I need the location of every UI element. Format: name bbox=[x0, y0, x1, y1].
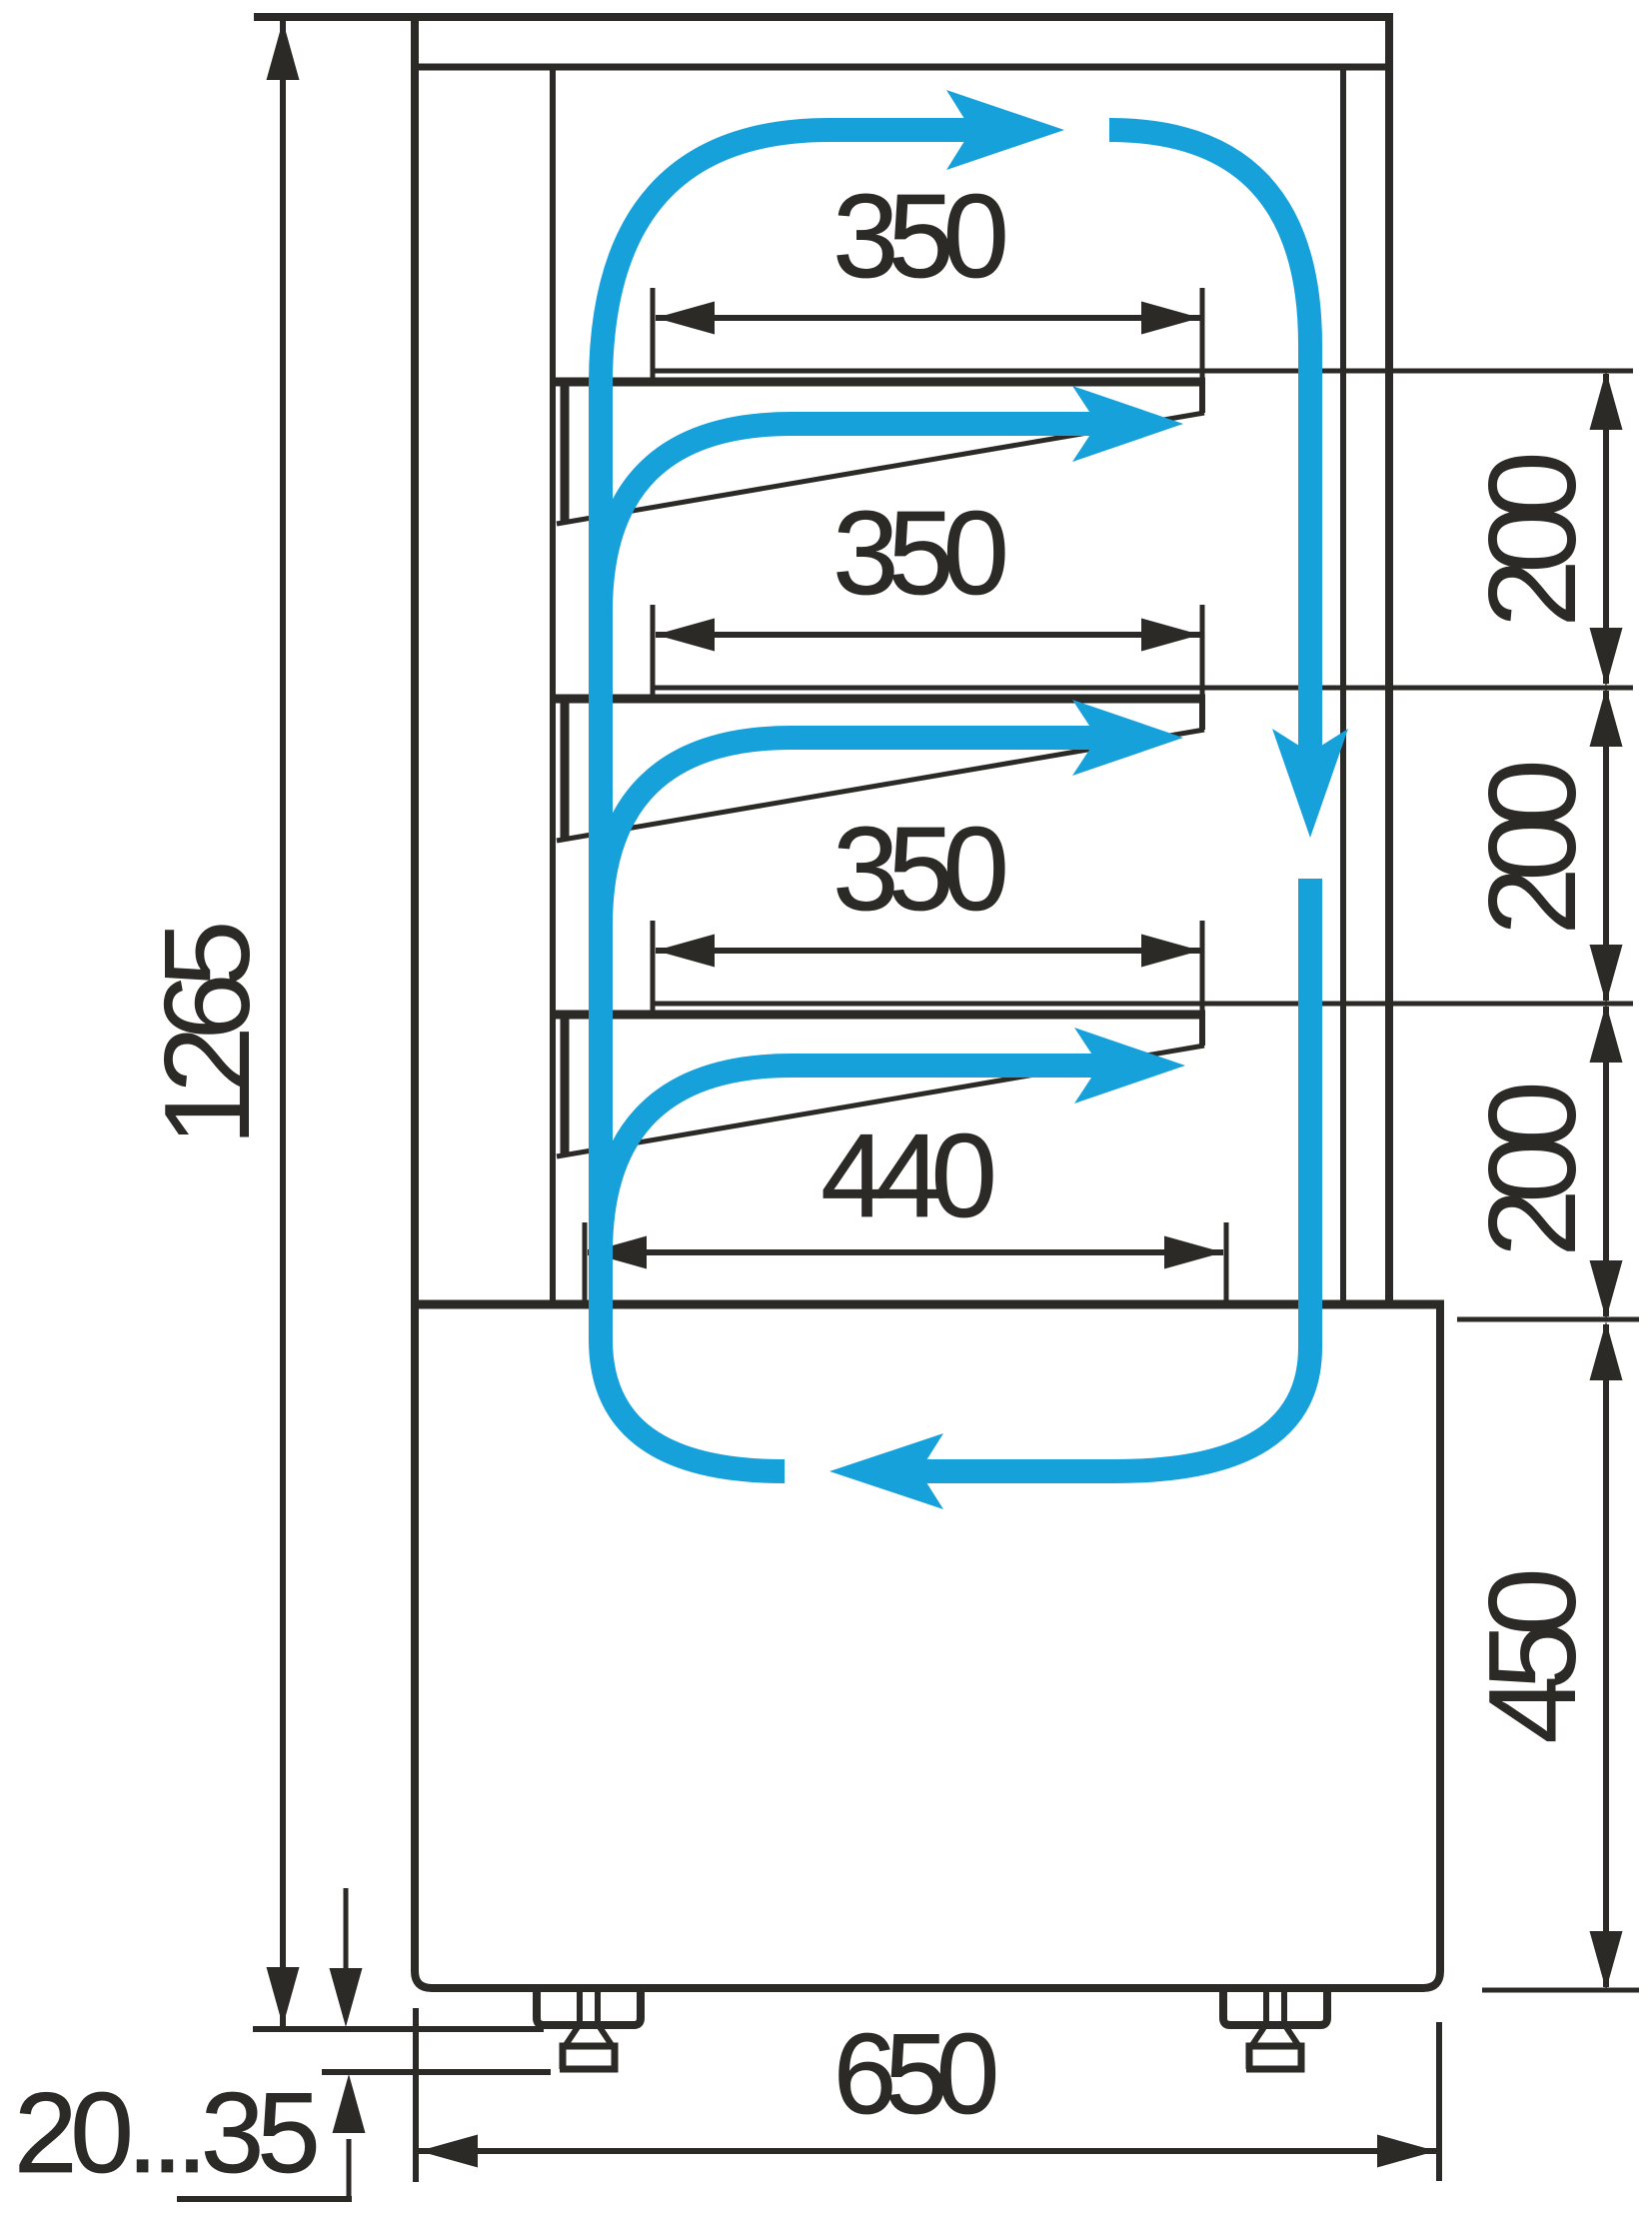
svg-text:350: 350 bbox=[832, 803, 1004, 936]
svg-text:350: 350 bbox=[832, 487, 1004, 620]
svg-text:200: 200 bbox=[1464, 763, 1602, 936]
svg-text:1265: 1265 bbox=[139, 925, 275, 1146]
svg-text:450: 450 bbox=[1464, 1571, 1602, 1744]
svg-text:350: 350 bbox=[832, 170, 1004, 303]
svg-text:200: 200 bbox=[1464, 1085, 1602, 1257]
svg-text:650: 650 bbox=[833, 2011, 995, 2138]
svg-text:200: 200 bbox=[1464, 455, 1602, 628]
svg-text:440: 440 bbox=[821, 1109, 992, 1242]
svg-text:20...35: 20...35 bbox=[14, 2070, 316, 2197]
